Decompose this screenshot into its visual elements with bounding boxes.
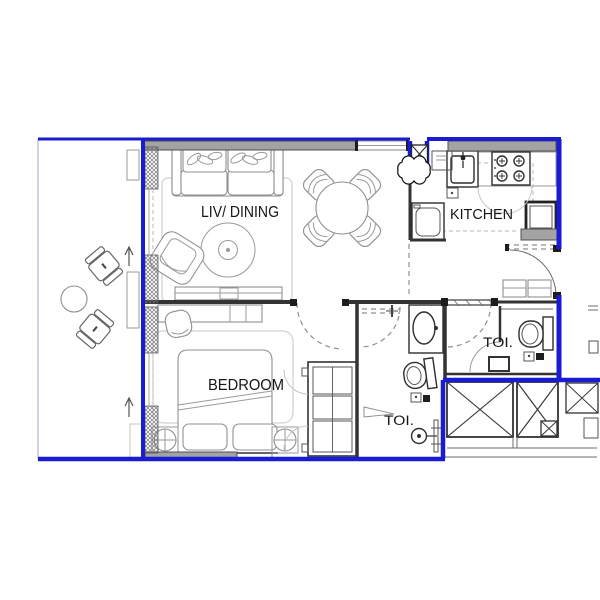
- window-sill: [127, 272, 139, 328]
- dining-table: [316, 182, 368, 234]
- label-toilet-bottom: TOI.: [384, 413, 414, 428]
- hatched-piers: [145, 147, 158, 453]
- label-living: LIV/ DINING: [201, 204, 279, 221]
- vanity-sink: [409, 305, 443, 353]
- wardrobe-door-swing: [284, 370, 308, 394]
- floor-drain: [423, 395, 430, 402]
- riser: [584, 418, 598, 438]
- balcony-table: [61, 286, 87, 312]
- floor-drain: [536, 353, 544, 360]
- pillow: [183, 424, 227, 450]
- shower-head: [412, 420, 442, 452]
- toilet-fixture: [402, 358, 437, 392]
- bathroom-zone: [360, 305, 443, 452]
- balcony-zone: [38, 139, 144, 459]
- corridor-lines: [445, 448, 597, 457]
- label-toilet-right: TOI.: [483, 335, 513, 350]
- floor-plan: LIV/ DINING KITCHEN BEDROOM TOI. TOI.: [0, 0, 600, 600]
- fridge: [526, 202, 556, 232]
- stove: [492, 152, 530, 185]
- cased-opening: [447, 299, 495, 306]
- sofa: [172, 146, 283, 196]
- section-marks: [589, 341, 598, 353]
- up-arrow-icon: [125, 398, 133, 417]
- toilet-fixture: [519, 317, 553, 350]
- kitchen-zone: [412, 151, 557, 240]
- label-bedroom: BEDROOM: [208, 377, 284, 394]
- pillow: [233, 424, 277, 450]
- cabinet: [489, 357, 509, 371]
- section-marks: [588, 306, 598, 310]
- balcony-chair: [74, 308, 116, 351]
- washing-machine: [412, 203, 444, 240]
- wall-segment: [521, 229, 557, 240]
- window-sill: [127, 150, 139, 180]
- wall-top-living: [143, 141, 357, 150]
- wall-top-kitchen: [448, 141, 556, 151]
- living-zone: [146, 146, 383, 302]
- label-kitchen: KITCHEN: [450, 206, 513, 223]
- revision-cloud: [398, 156, 431, 184]
- entry-door: [503, 244, 556, 297]
- sideboard: [175, 287, 282, 300]
- coffee-table-center: [226, 248, 230, 252]
- balcony-chair: [83, 245, 125, 288]
- dining-set: [301, 167, 384, 250]
- up-arrow-icon: [125, 247, 133, 266]
- bedroom-door-swing: [297, 303, 343, 349]
- bed: [172, 350, 278, 458]
- floor-plan-page: LIV/ DINING KITCHEN BEDROOM TOI. TOI.: [0, 0, 600, 600]
